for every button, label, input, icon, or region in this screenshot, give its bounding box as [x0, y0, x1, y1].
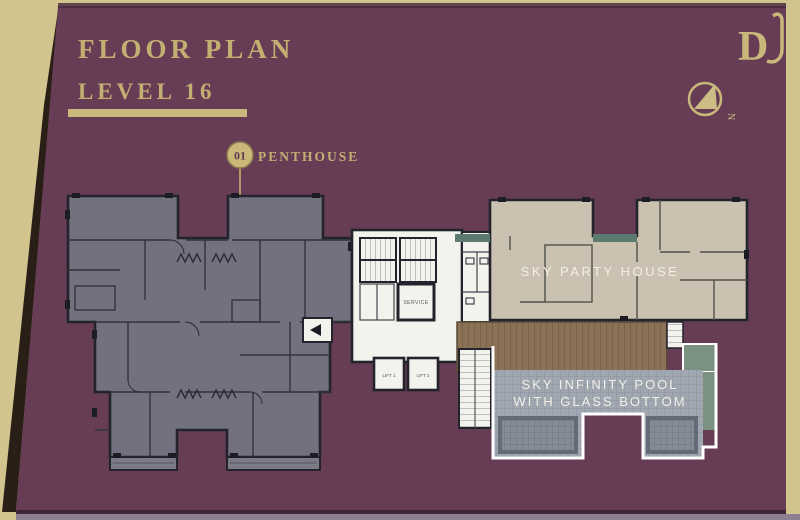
party-house-label: SKY PARTY HOUSE — [521, 264, 680, 279]
page-title: FLOOR PLAN — [78, 34, 294, 64]
page-bottom-strip — [16, 514, 800, 520]
planter-teal — [593, 234, 637, 242]
deck-stair — [667, 322, 683, 348]
floor-plan-page: FLOOR PLAN LEVEL 16 D N 01 PENTHOUSE — [0, 0, 800, 520]
lawn-green — [683, 344, 716, 372]
lift-2-label: LIFT 2 — [417, 373, 430, 378]
pool-label-line1: SKY INFINITY POOL — [521, 377, 678, 392]
panel-top-edge — [58, 3, 786, 8]
service-room-label: SERVICE — [403, 300, 429, 306]
title-underline-bar — [68, 109, 247, 117]
glass-bottom-section — [500, 418, 576, 452]
panel-bottom-edge — [16, 510, 786, 514]
lift-1-label: LIFT 1 — [383, 373, 396, 378]
compass-north-mark: N — [725, 113, 736, 120]
glass-bottom-section — [648, 418, 696, 452]
lawn-green-strip — [703, 372, 716, 430]
logo-monogram-letter: D — [738, 24, 768, 70]
unit-name-label: PENTHOUSE — [258, 149, 359, 164]
unit-number-text: 01 — [234, 149, 246, 163]
planter-teal — [455, 234, 490, 242]
page-subtitle-level: LEVEL 16 — [78, 79, 215, 104]
pool-label-line2: WITH GLASS BOTTOM — [513, 394, 686, 409]
floor-plan-canvas: FLOOR PLAN LEVEL 16 D N 01 PENTHOUSE — [0, 0, 800, 520]
